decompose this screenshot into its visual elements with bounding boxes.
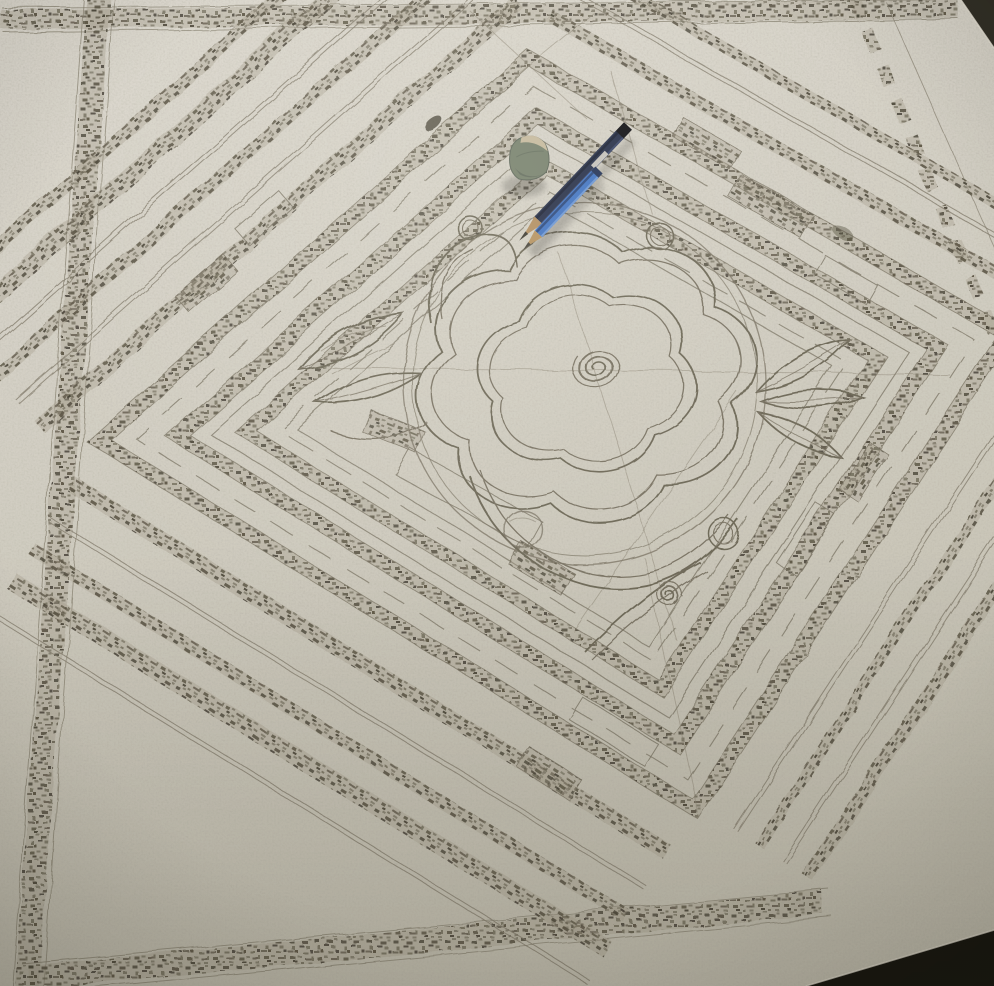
lighting-overlay xyxy=(0,0,994,986)
photo-desk-drawing xyxy=(0,0,994,986)
scene xyxy=(0,0,994,986)
